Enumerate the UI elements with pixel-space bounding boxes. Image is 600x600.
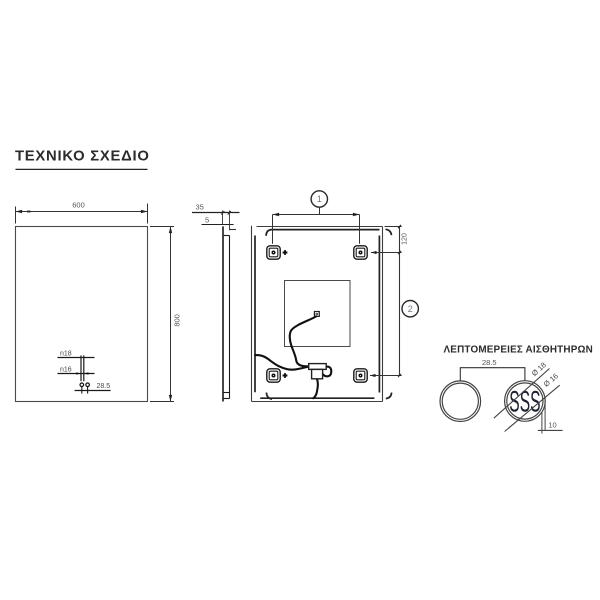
svg-text:600: 600 [72, 201, 85, 210]
svg-text:10: 10 [548, 421, 556, 430]
svg-text:35: 35 [196, 203, 204, 212]
svg-text:2: 2 [408, 304, 413, 314]
svg-text:5: 5 [205, 216, 209, 225]
svg-text:n18: n18 [60, 351, 72, 358]
svg-text:28.5: 28.5 [482, 358, 497, 367]
svg-text:ΤΕΧΝΙΚΟ ΣΧΕΔΙΟ: ΤΕΧΝΙΚΟ ΣΧΕΔΙΟ [15, 149, 150, 165]
svg-text:1: 1 [317, 194, 322, 204]
svg-text:120: 120 [402, 233, 409, 245]
svg-text:ΛΕΠΤΟΜΕΡΕΙΕΣ ΑΙΣΘΗΤΗΡΩΝ: ΛΕΠΤΟΜΕΡΕΙΕΣ ΑΙΣΘΗΤΗΡΩΝ [444, 345, 593, 356]
svg-text:28.5: 28.5 [97, 383, 111, 390]
svg-text:800: 800 [173, 314, 182, 327]
svg-text:n16: n16 [60, 367, 72, 374]
